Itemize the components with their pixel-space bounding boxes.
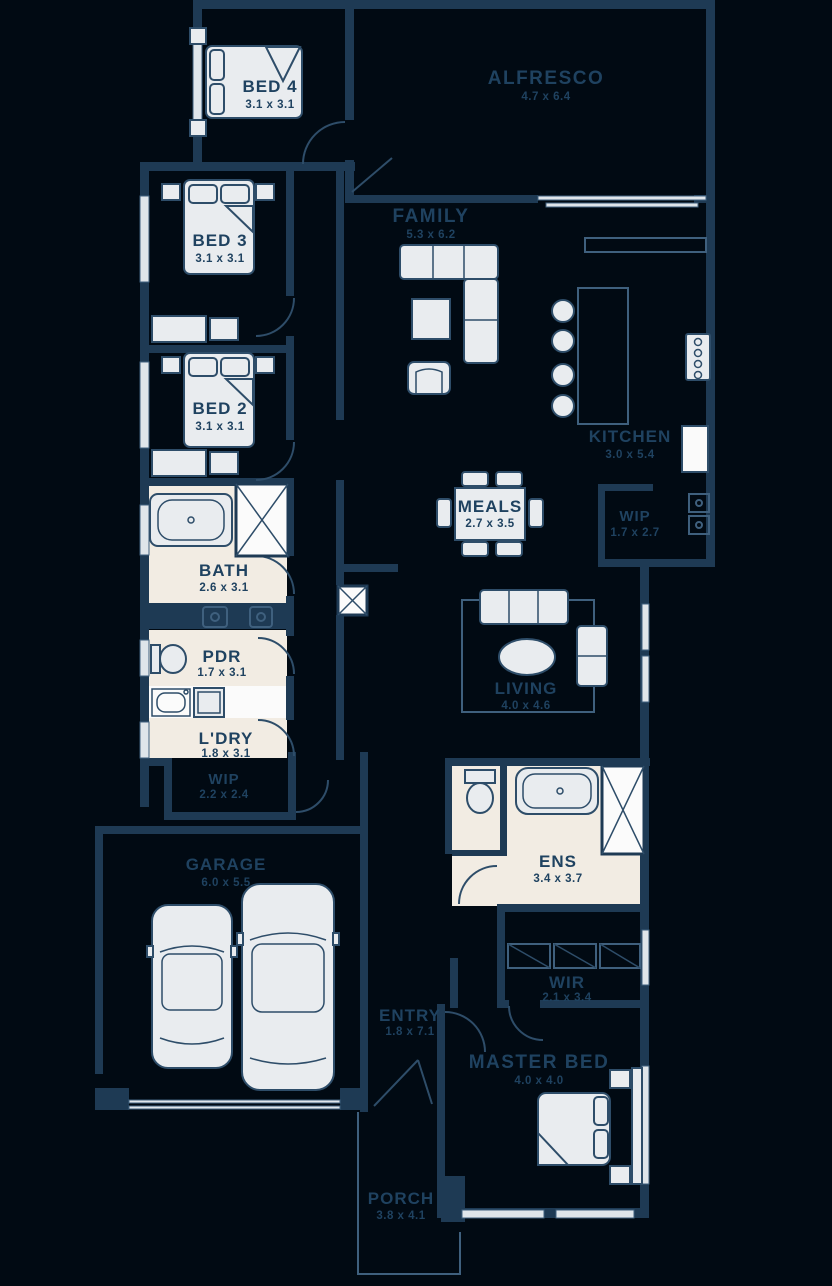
bath-label: BATH bbox=[199, 561, 249, 580]
kitchen-dims: 3.0 x 5.4 bbox=[605, 449, 654, 461]
meals-label: MEALS bbox=[458, 497, 523, 516]
family-dims: 5.3 x 6.2 bbox=[406, 229, 455, 241]
fridge bbox=[682, 426, 708, 472]
entry-dims: 1.8 x 7.1 bbox=[385, 1026, 434, 1038]
stool bbox=[552, 330, 574, 352]
garage-dims: 6.0 x 5.5 bbox=[201, 877, 250, 889]
bed3-robe bbox=[152, 316, 206, 342]
bath-window bbox=[140, 505, 149, 555]
family-furniture bbox=[400, 245, 498, 394]
bed4-door bbox=[303, 122, 345, 164]
linen-closet bbox=[338, 586, 367, 615]
bed2-label: BED 2 bbox=[192, 399, 247, 418]
wip-laundry-dims: 2.2 x 2.4 bbox=[199, 789, 248, 801]
chair bbox=[529, 499, 543, 527]
living-window bbox=[642, 604, 649, 650]
chair bbox=[496, 542, 522, 556]
wir-label: WIR bbox=[549, 973, 585, 992]
bed4-window bbox=[193, 36, 202, 120]
alfresco-label: ALFRESCO bbox=[488, 68, 605, 89]
garage-label: GARAGE bbox=[186, 855, 267, 874]
bed3-window bbox=[140, 196, 149, 282]
bath-dims: 2.6 x 3.1 bbox=[199, 582, 248, 594]
bed2-robe bbox=[210, 452, 238, 474]
master-bed-dims: 4.0 x 4.0 bbox=[514, 1075, 563, 1087]
coffee-table bbox=[412, 299, 450, 339]
car-small bbox=[147, 905, 237, 1068]
wip-kitchen-label: WIP bbox=[619, 508, 650, 525]
living-window bbox=[642, 656, 649, 702]
porch-dims: 3.8 x 4.1 bbox=[376, 1210, 425, 1222]
armchair bbox=[408, 362, 450, 394]
pillow bbox=[594, 1130, 608, 1158]
floor-plan-canvas: BED 4 3.1 x 3.1 ALFRESCO 4.7 x 6.4 BED 3… bbox=[0, 0, 832, 1286]
bed2-window bbox=[140, 362, 149, 448]
porch-label: PORCH bbox=[368, 1189, 434, 1208]
car-large bbox=[237, 884, 339, 1090]
pdr-label: PDR bbox=[203, 647, 242, 666]
living-dims: 4.0 x 4.6 bbox=[501, 700, 550, 712]
living-ottoman bbox=[499, 639, 555, 675]
master-side-window bbox=[642, 1066, 649, 1184]
master-window bbox=[556, 1210, 634, 1218]
bedside-table bbox=[610, 1070, 630, 1088]
pdr-window bbox=[140, 640, 149, 676]
ldry-label: L'DRY bbox=[199, 729, 254, 748]
meals-dims: 2.7 x 3.5 bbox=[465, 518, 514, 530]
garage-cars bbox=[147, 884, 339, 1090]
alfresco-slider bbox=[538, 196, 706, 200]
bed4-label: BED 4 bbox=[242, 77, 297, 96]
pdr-toilet bbox=[151, 645, 186, 673]
entry-label: ENTRY bbox=[379, 1006, 441, 1025]
bedhead bbox=[632, 1068, 642, 1184]
master-bed-label: MASTER BED bbox=[469, 1052, 610, 1073]
stool bbox=[552, 364, 574, 386]
wir-window bbox=[642, 930, 649, 985]
bed3-door bbox=[256, 298, 294, 336]
ens-dims: 3.4 x 3.7 bbox=[533, 873, 582, 885]
wip-kitchen-dims: 1.7 x 2.7 bbox=[610, 527, 659, 539]
bed2-robe bbox=[152, 450, 206, 476]
bed2-dims: 3.1 x 3.1 bbox=[195, 421, 244, 433]
ldry-dims: 1.8 x 3.1 bbox=[201, 748, 250, 760]
bedside-table bbox=[610, 1166, 630, 1184]
wip-laundry-label: WIP bbox=[208, 771, 239, 788]
bed4-dims: 3.1 x 3.1 bbox=[245, 99, 294, 111]
chair bbox=[496, 472, 522, 486]
bed3-label: BED 3 bbox=[192, 231, 247, 250]
master-door bbox=[445, 1012, 485, 1052]
garage-door-line bbox=[129, 1100, 340, 1103]
alfresco-door bbox=[352, 158, 392, 192]
wir-dims: 2.1 x 3.4 bbox=[542, 992, 591, 1004]
ens-toilet bbox=[465, 770, 495, 783]
kitchen-island bbox=[578, 288, 628, 424]
garage-door-line bbox=[129, 1106, 340, 1109]
bathtub bbox=[150, 494, 232, 546]
living-label: LIVING bbox=[495, 679, 558, 698]
wir-robes bbox=[508, 944, 640, 968]
front-door bbox=[374, 1060, 432, 1106]
kitchen-bench bbox=[585, 238, 706, 252]
chair bbox=[437, 499, 451, 527]
chair bbox=[462, 472, 488, 486]
chair bbox=[462, 542, 488, 556]
bed2-door bbox=[256, 442, 294, 480]
bed3-robe bbox=[210, 318, 238, 340]
pdr-dims: 1.7 x 3.1 bbox=[197, 667, 246, 679]
stool bbox=[552, 395, 574, 417]
kitchen-label: KITCHEN bbox=[589, 427, 672, 446]
wir-door bbox=[509, 1006, 543, 1040]
living-sofa bbox=[480, 590, 568, 624]
alfresco-slider bbox=[546, 203, 698, 207]
alfresco-dims: 4.7 x 6.4 bbox=[521, 91, 570, 103]
family-sofa bbox=[400, 245, 498, 279]
garage-internal-door bbox=[296, 780, 328, 812]
floor-plan-svg: BED 4 3.1 x 3.1 ALFRESCO 4.7 x 6.4 BED 3… bbox=[0, 0, 832, 1286]
bed3-dims: 3.1 x 3.1 bbox=[195, 253, 244, 265]
stool bbox=[552, 300, 574, 322]
family-label: FAMILY bbox=[393, 206, 470, 227]
ens-label: ENS bbox=[539, 852, 577, 871]
ldry-window bbox=[140, 722, 149, 758]
pillow bbox=[594, 1097, 608, 1125]
master-window bbox=[462, 1210, 544, 1218]
